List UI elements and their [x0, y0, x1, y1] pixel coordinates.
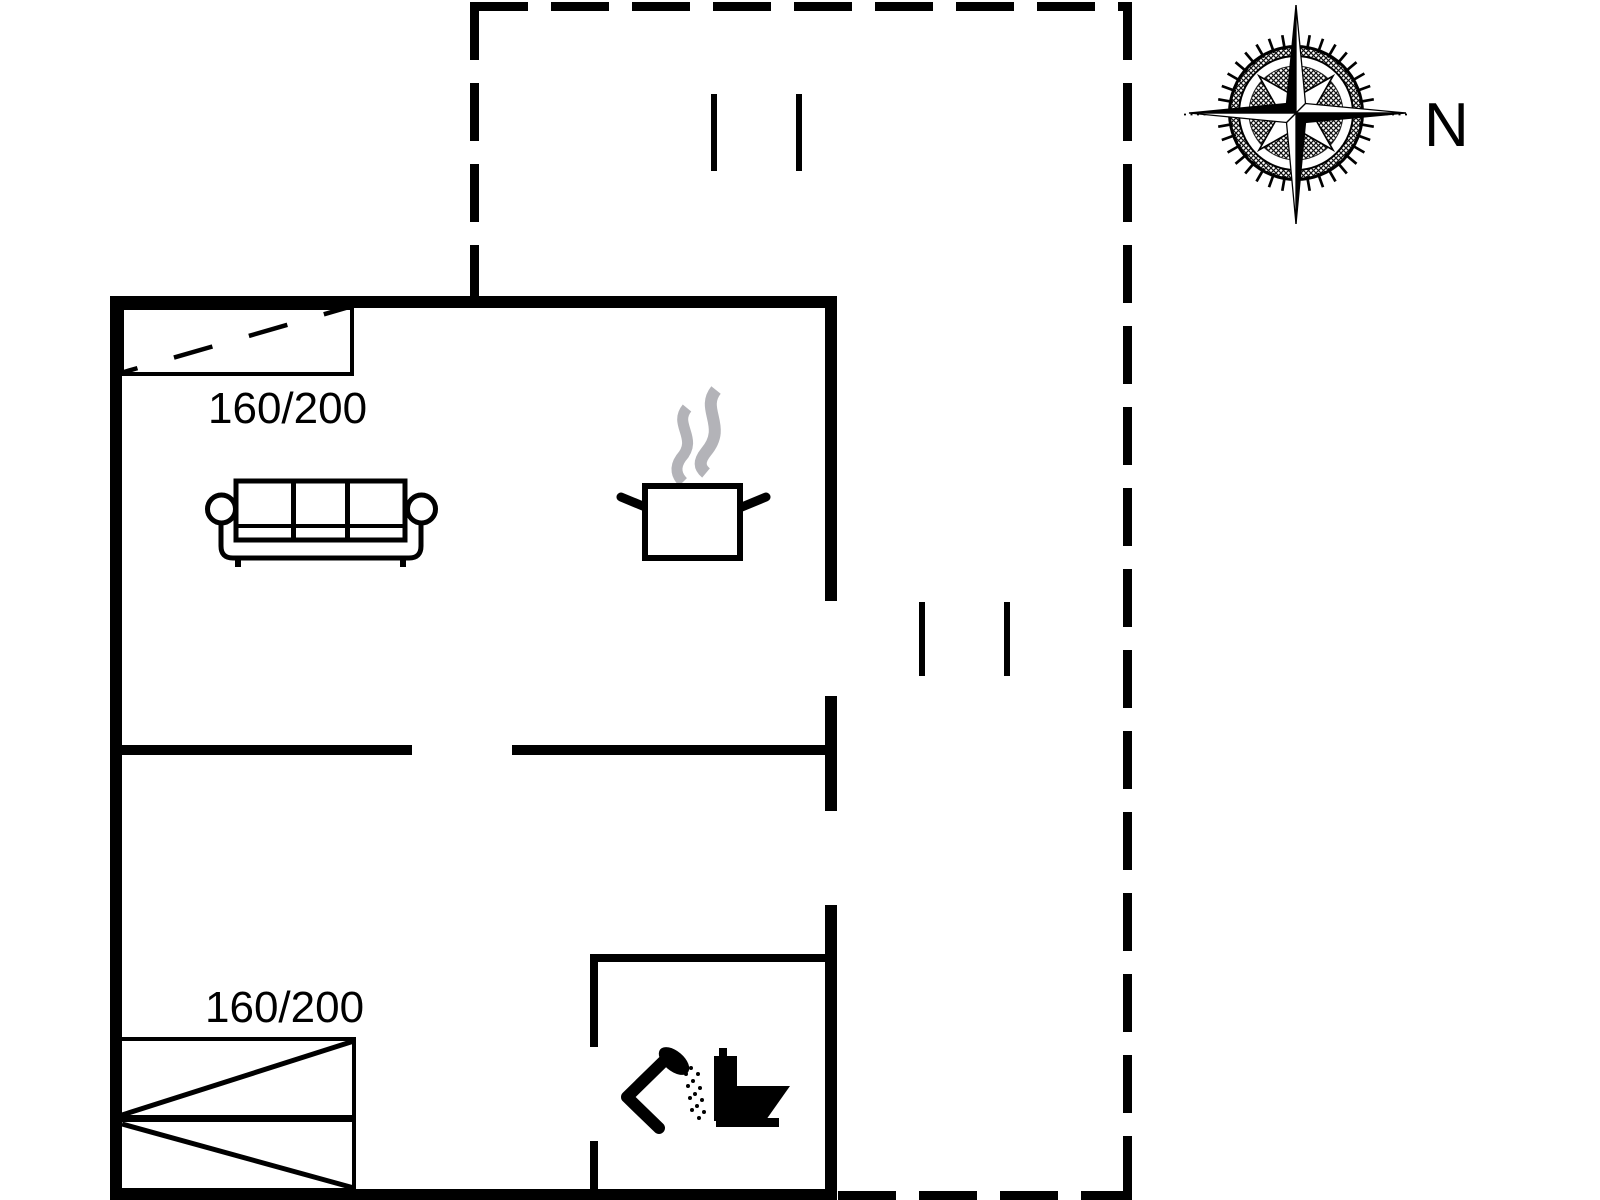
svg-text:160/200: 160/200: [208, 384, 367, 433]
svg-text:160/200: 160/200: [205, 983, 364, 1032]
svg-text:N: N: [1424, 91, 1469, 160]
